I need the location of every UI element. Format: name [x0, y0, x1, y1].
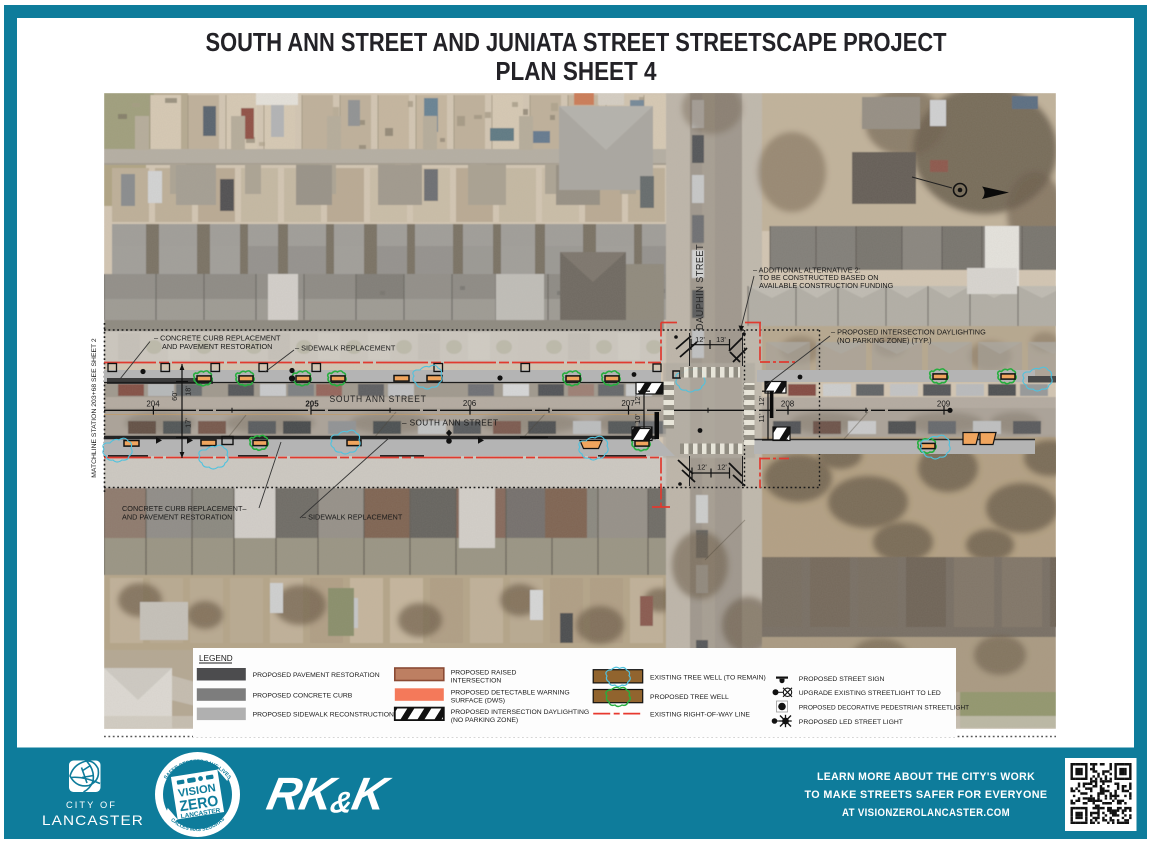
svg-text:12': 12'	[697, 463, 707, 472]
svg-text:204: 204	[146, 399, 160, 408]
svg-text:PLAN SHEET 4: PLAN SHEET 4	[496, 56, 657, 86]
svg-text:MATCHLINE STATION 203+68 SEE S: MATCHLINE STATION 203+68 SEE SHEET 2	[91, 338, 98, 478]
svg-text:60': 60'	[170, 391, 179, 401]
svg-text:13': 13'	[716, 335, 726, 344]
svg-text:LEGEND: LEGEND	[199, 654, 233, 663]
svg-text:PROPOSED DECORATIVE PEDESTRIAN: PROPOSED DECORATIVE PEDESTRIAN STREETLIG…	[799, 705, 969, 712]
svg-text:SURFACE (DWS): SURFACE (DWS)	[451, 698, 505, 705]
svg-text:INTERSECTION: INTERSECTION	[451, 677, 502, 684]
svg-text:PROPOSED LED STREET LIGHT: PROPOSED LED STREET LIGHT	[799, 719, 903, 726]
svg-text:208: 208	[781, 400, 795, 409]
svg-text:DAUPHIN STREET: DAUPHIN STREET	[695, 244, 706, 330]
svg-text:UPGRADE EXISTING STREETLIGHT T: UPGRADE EXISTING STREETLIGHT TO LED	[799, 690, 941, 697]
svg-text:CITY OF: CITY OF	[66, 800, 117, 810]
svg-text:PROPOSED TREE WELL: PROPOSED TREE WELL	[650, 694, 729, 701]
svg-text:205: 205	[305, 399, 319, 408]
svg-text:SOUTH ANN STREET: SOUTH ANN STREET	[330, 393, 427, 404]
svg-text:EXISTING RIGHT-OF-WAY LINE: EXISTING RIGHT-OF-WAY LINE	[650, 712, 750, 719]
svg-text:17': 17'	[184, 418, 193, 428]
svg-text:12': 12'	[717, 463, 727, 472]
svg-text:– SOUTH ANN STREET: – SOUTH ANN STREET	[402, 419, 498, 428]
svg-text:10': 10'	[633, 414, 642, 424]
svg-text:12': 12'	[695, 335, 705, 344]
svg-text:209: 209	[937, 400, 951, 409]
svg-text:PROPOSED RAISED: PROPOSED RAISED	[451, 669, 517, 676]
svg-text:PROPOSED CONCRETE CURB: PROPOSED CONCRETE CURB	[253, 692, 353, 699]
svg-text:18': 18'	[184, 386, 193, 396]
svg-text:12': 12'	[757, 396, 766, 406]
svg-text:TO MAKE STREETS SAFER FOR EVER: TO MAKE STREETS SAFER FOR EVERYONE	[805, 789, 1048, 801]
svg-text:AND PAVEMENT RESTORATION: AND PAVEMENT RESTORATION	[162, 342, 272, 351]
svg-text:– SIDEWALK REPLACEMENT: – SIDEWALK REPLACEMENT	[302, 513, 403, 522]
svg-text:RK&K: RK&K	[263, 768, 396, 819]
svg-text:PROPOSED STREET SIGN: PROPOSED STREET SIGN	[799, 676, 885, 683]
svg-text:11': 11'	[757, 413, 766, 423]
svg-text:AVAILABLE CONSTRUCTION FUNDING: AVAILABLE CONSTRUCTION FUNDING	[759, 281, 894, 290]
svg-text:AND PAVEMENT RESTORATION: AND PAVEMENT RESTORATION	[122, 513, 232, 522]
svg-text:– SIDEWALK REPLACEMENT: – SIDEWALK REPLACEMENT	[295, 344, 396, 353]
svg-text:PROPOSED SIDEWALK RECONSTRUCTI: PROPOSED SIDEWALK RECONSTRUCTION	[253, 712, 394, 719]
svg-text:12': 12'	[633, 395, 642, 405]
svg-text:(NO PARKING ZONE) (TYP.): (NO PARKING ZONE) (TYP.)	[837, 336, 932, 345]
svg-text:LEARN MORE ABOUT THE CITY'S WO: LEARN MORE ABOUT THE CITY'S WORK	[817, 771, 1035, 783]
svg-text:AT VISIONZEROLANCASTER.COM: AT VISIONZEROLANCASTER.COM	[842, 807, 1010, 819]
svg-text:SOUTH ANN STREET AND JUNIATA S: SOUTH ANN STREET AND JUNIATA STREET STRE…	[206, 27, 947, 57]
svg-text:PROPOSED DETECTABLE WARNING: PROPOSED DETECTABLE WARNING	[451, 690, 570, 697]
svg-text:PROPOSED INTERSECTION DAYLIGHT: PROPOSED INTERSECTION DAYLIGHTING	[451, 709, 589, 716]
svg-text:PROPOSED PAVEMENT RESTORATION: PROPOSED PAVEMENT RESTORATION	[253, 672, 380, 679]
svg-text:206: 206	[463, 399, 477, 408]
svg-text:(NO PARKING ZONE): (NO PARKING ZONE)	[451, 717, 518, 724]
svg-text:EXISTING TREE WELL (TO REMAIN): EXISTING TREE WELL (TO REMAIN)	[650, 675, 766, 682]
svg-text:LANCASTER: LANCASTER	[42, 813, 144, 828]
